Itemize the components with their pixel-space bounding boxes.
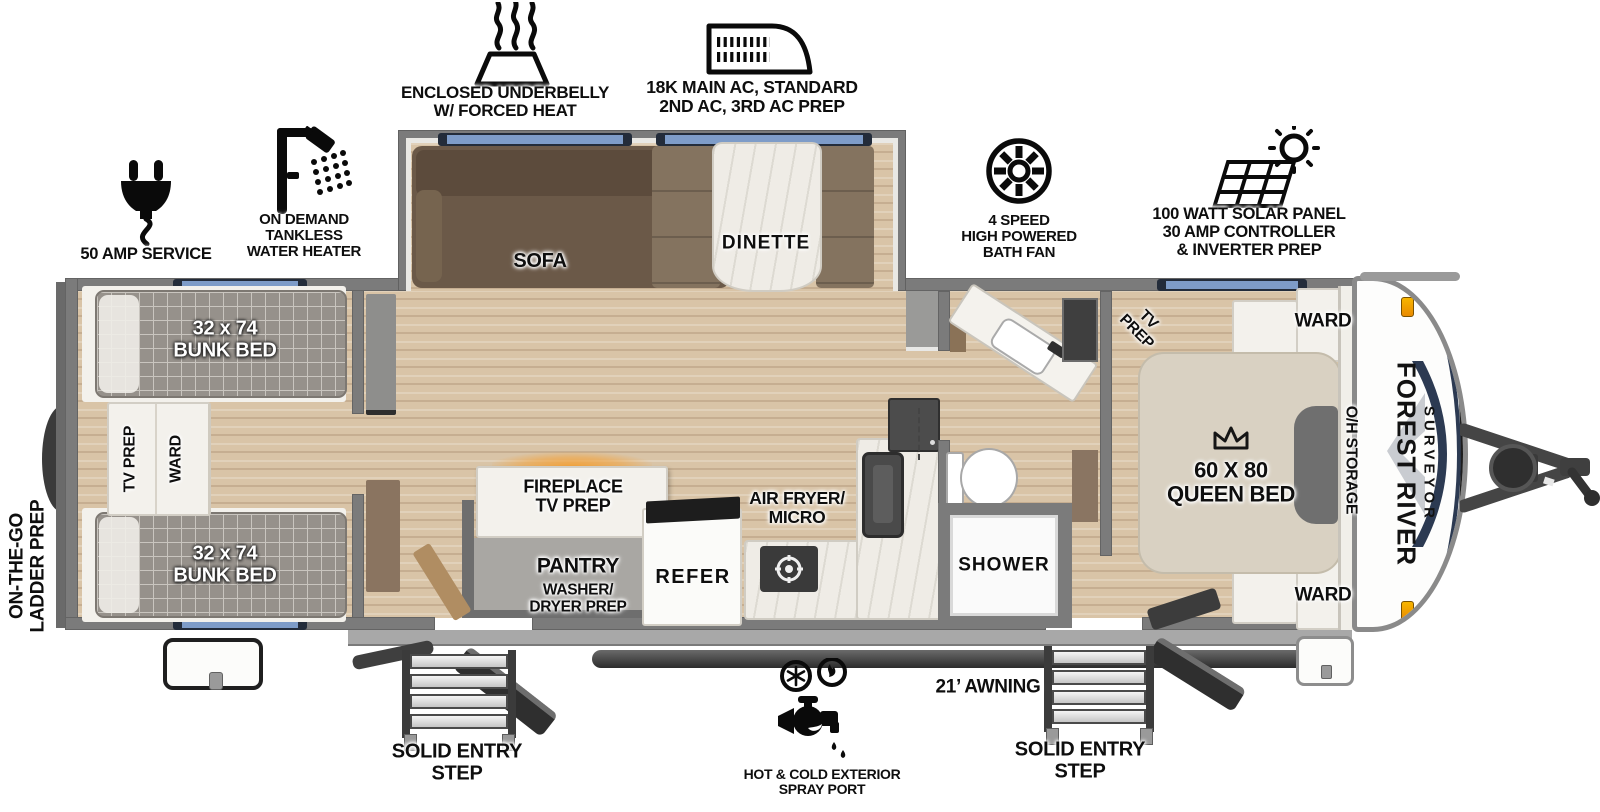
shower-head-icon (264, 126, 352, 220)
solar-callout-label: 100 WATT SOLAR PANEL 30 AMP CONTROLLER &… (1134, 206, 1364, 259)
wall-left (65, 278, 78, 630)
living-wardrobe-cabinet (366, 480, 400, 592)
power-plug-icon (108, 158, 184, 246)
front-cap-roof-trim (1360, 272, 1460, 281)
toilet-bowl (960, 448, 1018, 508)
bunk-pillow-bottom (99, 517, 139, 613)
fan-icon (984, 136, 1054, 206)
ladder-prep-label: ON-THE-GO LADDER PREP (7, 448, 48, 684)
dinette-bench-right (816, 146, 874, 288)
nightstand-top (1232, 300, 1298, 358)
compartment-door-front (1296, 636, 1354, 686)
entry-door-right (1146, 636, 1246, 712)
living-overhead-cabinet (366, 294, 396, 415)
bunk-ward-label: WARD (167, 435, 184, 483)
dinette-bench-left (652, 146, 720, 288)
marker-light-bottom (1401, 601, 1414, 621)
compartment-door-rear (163, 638, 263, 690)
entry-step-left (402, 650, 516, 738)
sofa-label: SOFA (513, 251, 566, 273)
wall-bunk-top (352, 290, 364, 414)
hitch-a-frame (1460, 408, 1600, 528)
refer-label: REFER (655, 567, 730, 589)
ac-unit-icon (700, 16, 818, 80)
pantry-label: PANTRY (537, 556, 619, 579)
brand-make-label: FOREST RIVER (1391, 362, 1422, 566)
stove-cooktop (760, 546, 818, 592)
fan-callout-label: 4 SPEED HIGH POWERED BATH FAN (949, 213, 1089, 262)
awning-label: 21’ AWNING (935, 678, 1040, 699)
bath-linen-cabinet (1072, 450, 1098, 522)
wall-bath-right (1100, 291, 1112, 556)
bunk-pillow-top (99, 295, 139, 393)
oh-storage-label: O/H STORAGE (1342, 406, 1359, 514)
bunk-cabinet-divider (155, 404, 157, 514)
entry-step-right-label: SOLID ENTRY STEP (1015, 739, 1145, 782)
solar-panel-icon (1212, 126, 1320, 212)
flame-icon (828, 664, 835, 677)
ward-bottom-label: WARD (1295, 586, 1352, 607)
pantry-sub-label: WASHER/ DRYER PREP (529, 582, 626, 615)
fireplace-label: FIREPLACE TV PREP (523, 478, 622, 517)
heat-icon (452, 2, 572, 88)
bunk-top-label: 32 x 74 BUNK BED (173, 318, 276, 361)
marker-light-top (1401, 297, 1414, 317)
burner-icon (774, 554, 804, 584)
bed-headboard-pillow (1294, 406, 1338, 524)
wall-bunk-bottom (352, 494, 364, 618)
crown-icon (1208, 424, 1254, 454)
amp-callout-label: 50 AMP SERVICE (58, 246, 234, 264)
brand-model-label: SURVEYOR (1421, 406, 1438, 522)
entry-step-left-label: SOLID ENTRY STEP (392, 741, 522, 784)
floorplan-diagram: ENCLOSED UNDERBELLY W/ FORCED HEAT 18K M… (0, 0, 1600, 812)
entry-step-right (1044, 646, 1154, 732)
faucet-glyph (778, 696, 839, 736)
body-skirt (348, 630, 1352, 646)
bath-door-swing (918, 408, 922, 460)
spray-port-icon (770, 658, 878, 764)
air-fryer-label: AIR FRYER/ MICRO (749, 489, 845, 527)
medicine-cabinet (1062, 298, 1098, 362)
queen-bed-label: 60 X 80 QUEEN BED (1167, 458, 1295, 506)
shower-label: SHOWER (958, 556, 1050, 577)
dinette-label: DINETTE (722, 234, 810, 255)
bedroom-window (1157, 279, 1307, 291)
snowflake-icon (788, 667, 804, 685)
ward-top-label: WARD (1295, 312, 1352, 333)
bunk-bottom-label: 32 x 74 BUNK BED (173, 543, 276, 586)
kitchen-overhead-cabinet (906, 291, 938, 351)
awning-roller-bar (592, 650, 1340, 668)
compartment-latch (209, 672, 223, 690)
heater-callout-label: ON DEMAND TANKLESS WATER HEATER (236, 212, 372, 261)
dinette-table (712, 142, 822, 292)
sofa-window (438, 133, 632, 146)
nightstand-bottom (1232, 566, 1298, 624)
underbelly-callout-label: ENCLOSED UNDERBELLY W/ FORCED HEAT (390, 84, 620, 121)
spray-port-label: HOT & COLD EXTERIOR SPRAY PORT (744, 767, 901, 797)
bunk-tv-prep-label: TV PREP (121, 426, 138, 492)
microwave-air-fryer (888, 398, 940, 452)
ac-callout-label: 18K MAIN AC, STANDARD 2ND AC, 3RD AC PRE… (633, 78, 871, 116)
kitchen-sink (862, 452, 904, 538)
